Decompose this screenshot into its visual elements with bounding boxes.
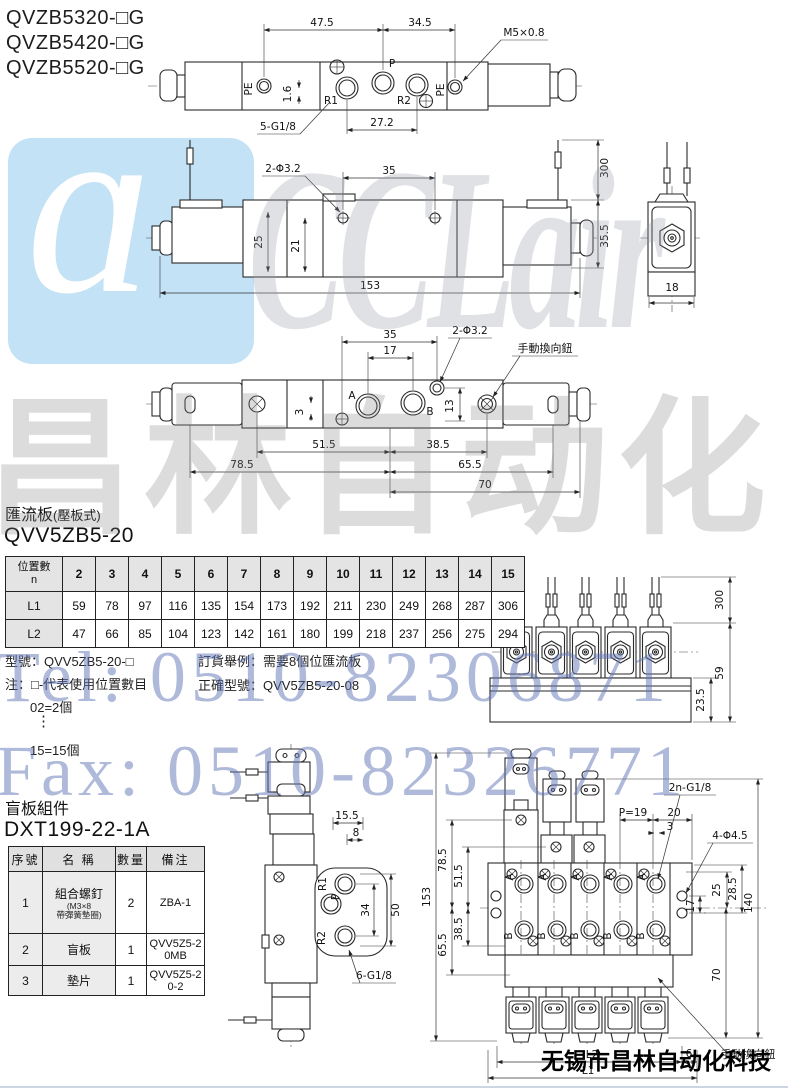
part-remark: QVV5Z5-20MB [147, 934, 205, 966]
l1-row: L1 59 78 97 116 135 154 173 192 211 230 … [6, 592, 525, 620]
r2-label: R2 [397, 95, 411, 107]
dim-3: 3 [294, 409, 306, 416]
header-remark: 備注 [147, 847, 205, 872]
dim-15-5: 15.5 [335, 810, 358, 822]
dim-65-5a: 65.5 [437, 933, 449, 956]
manifold-section-title: 匯流板(壓板式) [5, 501, 101, 525]
dim-p19: P=19 [619, 807, 648, 819]
parts-row-3: 3 墊片 1 QVV5Z5-20-2 [9, 966, 205, 996]
blank-plate-parts-table: 序號 名 稱 數量 備注 1 組合螺釘 (M3×8 帶彈簧墊圈) 2 ZBA-1… [8, 846, 205, 996]
pos-header: 11 [360, 557, 393, 592]
dim-21: 21 [290, 239, 302, 252]
l1-value: 97 [129, 592, 162, 620]
part-qty: 2 [116, 872, 147, 934]
l1-value: 135 [195, 592, 228, 620]
side-view-drawing: 2-Φ3.2 35 300 35.5 25 21 153 [146, 140, 611, 298]
dim-4phi45: 4-Φ4.5 [712, 830, 747, 842]
l1-value: 287 [459, 592, 492, 620]
model-note-2: 注：□-代表使用位置數目 [5, 674, 147, 693]
l2-value: 237 [393, 620, 426, 648]
pe-left-label: PE [243, 83, 255, 96]
r2-label: R2 [316, 931, 328, 945]
dim-140: 140 [743, 893, 755, 913]
dim-35b: 35 [383, 329, 396, 341]
model-note-1: 型號：QVV5ZB5-20-□ [5, 651, 134, 670]
dim-34-5: 34.5 [408, 17, 431, 29]
pos-header: 12 [393, 557, 426, 592]
part-name-sub2: 帶彈簧墊圈) [43, 911, 115, 920]
header-no: 序號 [9, 847, 43, 872]
parts-header-row: 序號 名 稱 數量 備注 [9, 847, 205, 872]
part-no: 3 [9, 966, 43, 996]
model-number-3: QVZB5520-□G [6, 56, 145, 81]
pos-header: 7 [228, 557, 261, 592]
corner-header-cell: 位置數 n [6, 557, 63, 592]
part-no: 2 [9, 934, 43, 966]
header-qty: 數量 [116, 847, 147, 872]
dim-28-5: 28.5 [727, 877, 739, 900]
r1-label: R1 [324, 95, 338, 107]
manifold-title-sub: (壓板式) [53, 508, 101, 523]
dim-25: 25 [253, 235, 265, 248]
header-name: 名 稱 [43, 847, 116, 872]
dim-78-5: 78.5 [230, 459, 253, 471]
l2-value: 294 [492, 620, 525, 648]
manual-override-label: 手動換向鈕 [518, 341, 573, 355]
pos-header: 9 [294, 557, 327, 592]
dim-35: 35 [382, 165, 395, 177]
bottom-view-drawing: A B 3 13 35 17 2-Φ3.2 手動換向鈕 [146, 325, 600, 498]
l2-label: L2 [6, 620, 63, 648]
dim-25a: 25 [711, 883, 723, 896]
part-qty: 1 [116, 934, 147, 966]
single-valve-drawing: R1 P R2 15.5 8 34 50 6-G1/8 [228, 744, 402, 1047]
part-qty: 1 [116, 966, 147, 996]
dim-47-5: 47.5 [310, 17, 333, 29]
l1-value: 173 [261, 592, 294, 620]
dim-2phi32b: 2-Φ3.2 [452, 325, 487, 337]
pos-header: 5 [162, 557, 195, 592]
pos-header: 14 [459, 557, 492, 592]
pos-header: 2 [63, 557, 96, 592]
dim-51-5a: 51.5 [453, 864, 465, 887]
l1-value: 211 [327, 592, 360, 620]
dim-8: 8 [353, 827, 360, 839]
model-number-1: QVZB5320-□G [6, 6, 145, 31]
pos-header: 6 [195, 557, 228, 592]
dim-18: 18 [665, 282, 678, 294]
port-b-label: B [426, 406, 433, 418]
dim-78-5a: 78.5 [437, 848, 449, 871]
part-no: 1 [9, 872, 43, 934]
manifold-model-number: QVV5ZB5-20 [4, 524, 134, 548]
part-remark: ZBA-1 [147, 872, 205, 934]
l1-value: 192 [294, 592, 327, 620]
dim-38-5: 38.5 [426, 439, 449, 451]
dim-70: 70 [478, 479, 491, 491]
l1-value: 116 [162, 592, 195, 620]
part-name: 組合螺釘 (M3×8 帶彈簧墊圈) [43, 872, 116, 934]
dim-70a: 70 [711, 968, 723, 981]
part-name: 盲板 [43, 934, 116, 966]
part-remark: QVV5Z5-20-2 [147, 966, 205, 996]
l2-value: 180 [294, 620, 327, 648]
l1-value: 268 [426, 592, 459, 620]
l1-value: 154 [228, 592, 261, 620]
part-name-main: 組合螺釘 [43, 885, 115, 902]
dim-51-5: 51.5 [312, 439, 335, 451]
dim-38-5a: 38.5 [453, 917, 465, 940]
dim-300f: 300 [714, 590, 726, 610]
manifold-assembly-drawing: P=19 20 3 2n-G1/8 4-Φ4.5 153 78.5 51.5 [421, 749, 776, 1083]
l2-value: 123 [195, 620, 228, 648]
pos-header: 8 [261, 557, 294, 592]
dim-6g18: 6-G1/8 [356, 970, 392, 982]
top-view-drawing: PE R1 P R2 PE 47.5 34.5 M5×0.8 [148, 17, 585, 134]
dim-23-5: 23.5 [695, 688, 707, 711]
dim-1-6: 1.6 [282, 85, 294, 102]
r1-label: R1 [317, 877, 329, 891]
ellipsis-dots: ⋮ [36, 712, 51, 730]
l2-value: 104 [162, 620, 195, 648]
l1-label: L1 [6, 592, 63, 620]
dim-153a: 153 [421, 887, 433, 907]
dim-2n-g18: 2n-G1/8 [669, 782, 712, 794]
dim-35-5: 35.5 [599, 224, 611, 247]
l1-value: 230 [360, 592, 393, 620]
dim-5-g18: 5-G1/8 [260, 121, 296, 133]
pos-header: 4 [129, 557, 162, 592]
dim-m5: M5×0.8 [503, 27, 544, 39]
part-name: 墊片 [43, 966, 116, 996]
l2-row: L2 47 66 85 104 123 142 161 180 199 218 … [6, 620, 525, 648]
manifold-title-text: 匯流板 [5, 507, 53, 524]
manifold-front-drawing: 300 59 23.5 [490, 577, 736, 722]
dim-27-2: 27.2 [370, 117, 393, 129]
parts-row-1: 1 組合螺釘 (M3×8 帶彈簧墊圈) 2 ZBA-1 [9, 872, 205, 934]
model-note-5: 15=15個 [30, 740, 80, 759]
l2-value: 161 [261, 620, 294, 648]
dim-34: 34 [360, 903, 372, 917]
dim-50: 50 [390, 903, 402, 916]
blank-plate-model-number: DXT199-22-1A [4, 818, 150, 842]
model-number-list: QVZB5320-□G QVZB5420-□G QVZB5520-□G [6, 6, 145, 81]
pos-header: 15 [492, 557, 525, 592]
l2-value: 142 [228, 620, 261, 648]
dim-153: 153 [360, 280, 380, 292]
parts-row-2: 2 盲板 1 QVV5Z5-20MB [9, 934, 205, 966]
p-label: P [330, 894, 342, 900]
table-header-row: 位置數 n 2 3 4 5 6 7 8 9 10 11 12 13 14 15 [6, 557, 525, 592]
order-example-1: 訂貨舉例：需要8個位匯流板 [198, 651, 361, 670]
pos-header: 3 [96, 557, 129, 592]
l1-value: 59 [63, 592, 96, 620]
port-a-label: A [348, 390, 356, 402]
l2-value: 256 [426, 620, 459, 648]
l2-value: 85 [129, 620, 162, 648]
l1-value: 306 [492, 592, 525, 620]
l1-value: 78 [96, 592, 129, 620]
p-label: P [389, 58, 395, 70]
pe-right-label: PE [435, 84, 447, 97]
l2-value: 275 [459, 620, 492, 648]
corner-bottom: n [6, 574, 62, 587]
corner-top: 位置數 [6, 561, 62, 574]
l2-value: 66 [96, 620, 129, 648]
dim-65-5: 65.5 [458, 459, 481, 471]
dim-3a: 3 [667, 821, 674, 833]
page-bottom-edge [0, 1086, 788, 1088]
dim-17b: 17 [383, 345, 396, 357]
dim-13: 13 [444, 399, 456, 412]
model-number-2: QVZB5420-□G [6, 31, 145, 56]
dim-59: 59 [714, 666, 726, 679]
l2-value: 47 [63, 620, 96, 648]
l1-value: 249 [393, 592, 426, 620]
position-dimension-table: 位置數 n 2 3 4 5 6 7 8 9 10 11 12 13 14 15 [5, 556, 525, 648]
l2-value: 218 [360, 620, 393, 648]
dim-2phi32: 2-Φ3.2 [265, 163, 300, 175]
l2-value: 199 [327, 620, 360, 648]
company-name-text: 无锡市昌林自动化科技 [541, 1042, 771, 1076]
blank-plate-section-title: 盲板組件 [5, 795, 69, 819]
end-view-drawing: 18 [640, 142, 703, 312]
dim-300: 300 [599, 158, 611, 178]
dim-17a: 17 [685, 899, 697, 912]
pos-header: 10 [327, 557, 360, 592]
catalog-page: ɑ [0, 0, 788, 1092]
order-example-2: 正確型號：QVV5ZB5-20-08 [198, 675, 359, 694]
pos-header: 13 [426, 557, 459, 592]
